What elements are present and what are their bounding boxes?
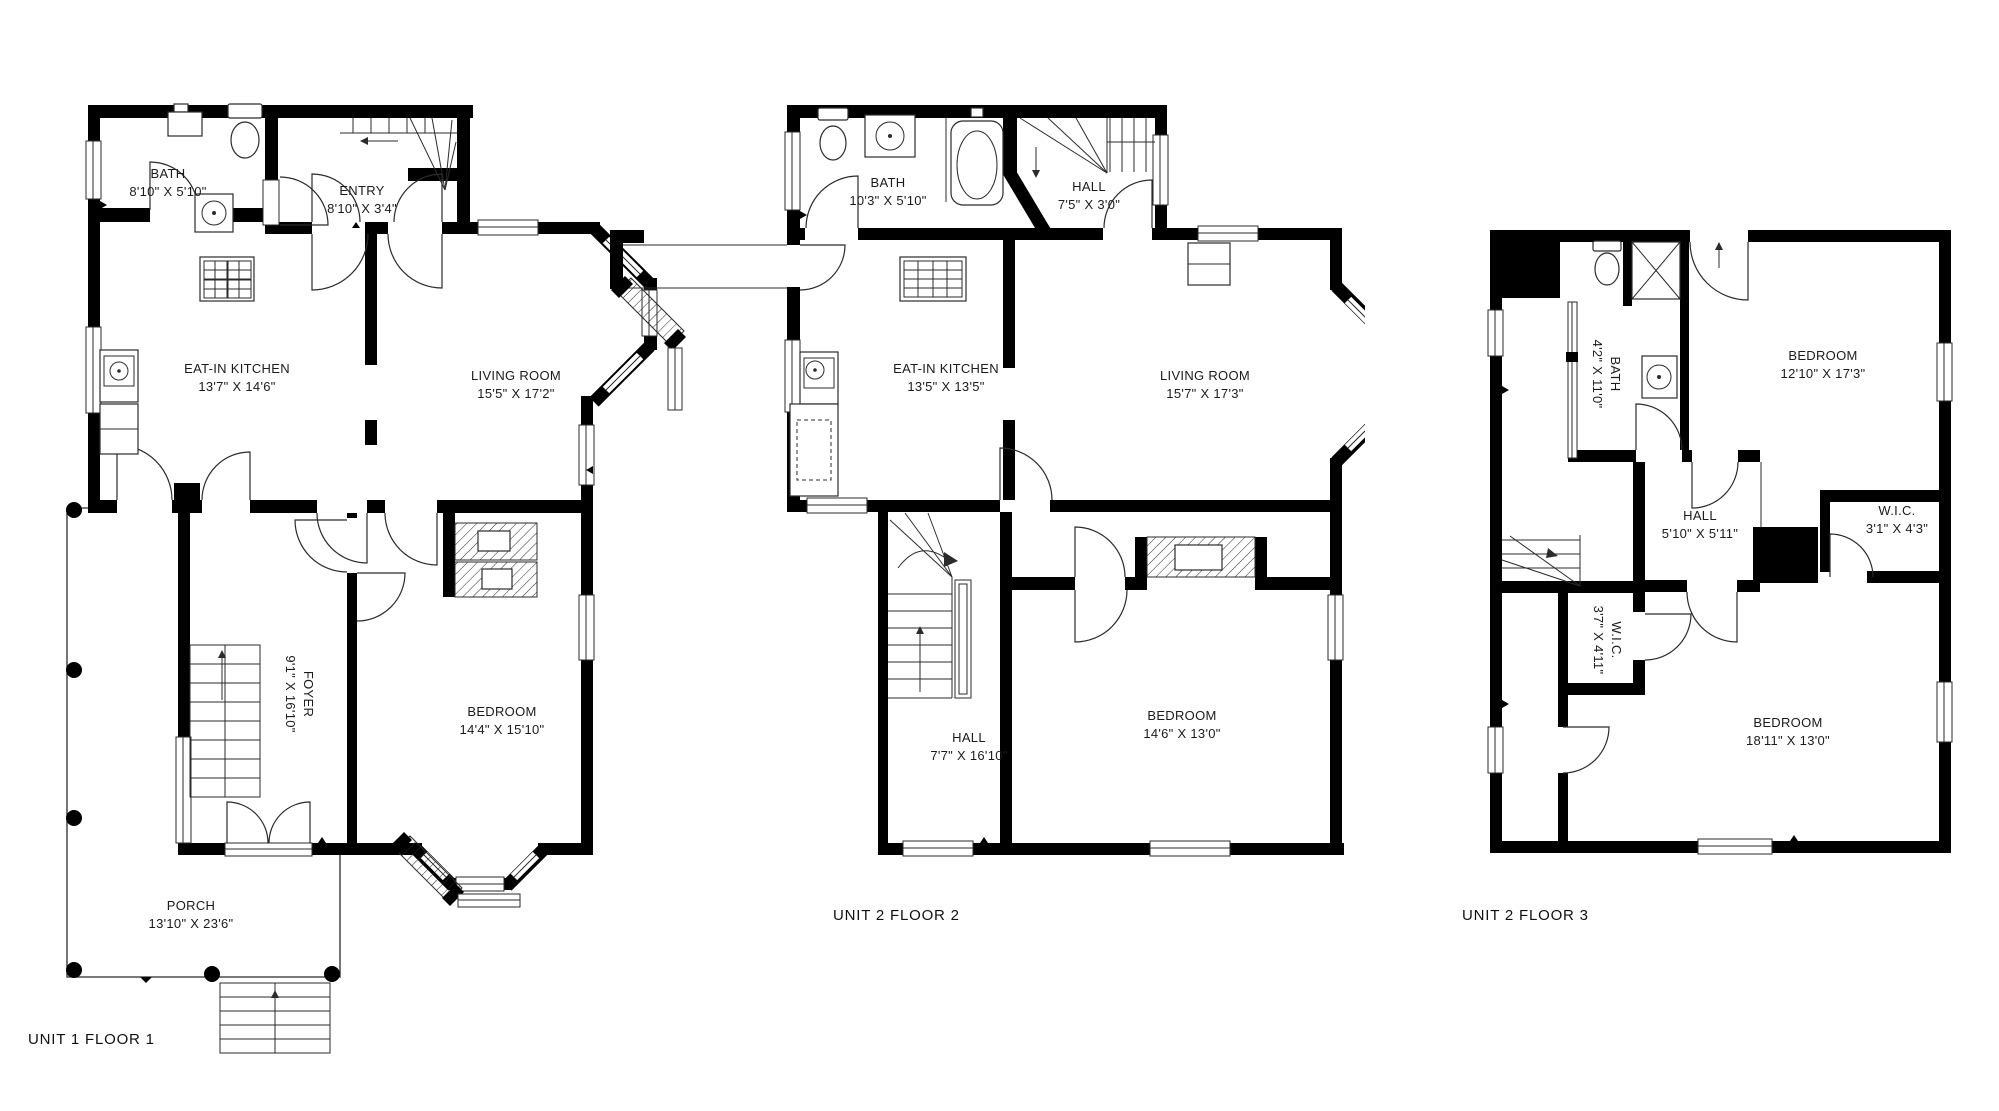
room-label-living-room-2: LIVING ROOM 15'7" X 17'3" xyxy=(1160,367,1250,403)
side-steps xyxy=(390,832,520,907)
lower-stairs xyxy=(888,513,971,698)
room-name: HALL xyxy=(930,729,1007,747)
room-dims: 14'4" X 15'10" xyxy=(460,721,545,739)
room-dims: 14'6" X 13'0" xyxy=(1143,725,1220,743)
floor-title-unit2-floor2: UNIT 2 FLOOR 2 xyxy=(833,907,960,924)
unit2-floor3-drawing xyxy=(1480,220,1980,870)
room-dims: 15'5" X 17'2" xyxy=(471,385,561,403)
upper-stairs xyxy=(1020,118,1155,178)
room-name: W.I.C. xyxy=(1607,606,1625,675)
room-name: BEDROOM xyxy=(1143,707,1220,725)
room-dims: 10'3" X 5'10" xyxy=(849,192,926,210)
entry-stairs xyxy=(340,118,457,190)
room-dims: 8'10" X 5'10" xyxy=(129,183,206,201)
closets-hatched xyxy=(455,523,537,597)
room-label-living-room: LIVING ROOM 15'5" X 17'2" xyxy=(471,367,561,403)
floor-title-unit1-floor1: UNIT 1 FLOOR 1 xyxy=(28,1031,155,1048)
floor-title-unit2-floor3: UNIT 2 FLOOR 3 xyxy=(1462,907,1589,924)
room-name: BEDROOM xyxy=(1781,347,1866,365)
foyer-stairs xyxy=(190,645,260,797)
room-label-hall-upper: HALL 7'5" X 3'0" xyxy=(1058,178,1120,214)
room-name: BEDROOM xyxy=(460,703,545,721)
room-label-bath: BATH 8'10" X 5'10" xyxy=(129,165,206,201)
room-name: W.I.C. xyxy=(1866,502,1928,520)
room-label-kitchen-2: EAT-IN KITCHEN 13'5" X 13'5" xyxy=(893,360,999,396)
room-label-hall-3: HALL 5'10" X 5'11" xyxy=(1662,507,1738,543)
room-dims: 13'7" X 14'6" xyxy=(184,378,290,396)
walls xyxy=(787,105,1344,855)
room-dims: 3'1" X 4'3" xyxy=(1866,520,1928,538)
room-dims: 13'10" X 23'6" xyxy=(149,915,234,933)
room-label-porch: PORCH 13'10" X 23'6" xyxy=(149,897,234,933)
room-name: LIVING ROOM xyxy=(471,367,561,385)
room-label-kitchen: EAT-IN KITCHEN 13'7" X 14'6" xyxy=(184,360,290,396)
room-label-bedroom: BEDROOM 14'4" X 15'10" xyxy=(460,703,545,739)
room-dims: 4'2" X 11'0" xyxy=(1588,340,1606,409)
room-label-bath-3: BATH 4'2" X 11'0" xyxy=(1588,340,1624,409)
room-dims: 15'7" X 17'3" xyxy=(1160,385,1250,403)
room-dims: 3'7" X 4'11" xyxy=(1589,606,1607,675)
room-name: ENTRY xyxy=(327,182,397,200)
windows xyxy=(86,141,594,856)
room-dims: 13'5" X 13'5" xyxy=(893,378,999,396)
kitchen-fixtures xyxy=(100,257,254,454)
closet-hatched xyxy=(1147,537,1255,577)
room-label-foyer: FOYER 9'1" X 16'10" xyxy=(281,655,317,732)
room-name: FOYER xyxy=(299,655,317,732)
bay-window xyxy=(1336,286,1365,462)
floorplan-page: BATH 8'10" X 5'10" ENTRY 8'10" X 3'4" EA… xyxy=(0,0,1999,1111)
room-dims: 12'10" X 17'3" xyxy=(1781,365,1866,383)
room-dims: 8'10" X 3'4" xyxy=(327,200,397,218)
room-name: EAT-IN KITCHEN xyxy=(184,360,290,378)
room-label-entry: ENTRY 8'10" X 3'4" xyxy=(327,182,397,218)
room-name: BATH xyxy=(1606,340,1624,409)
room-dims: 7'5" X 3'0" xyxy=(1058,196,1120,214)
porch-front-steps xyxy=(220,983,330,1053)
room-dims: 5'10" X 5'11" xyxy=(1662,525,1738,543)
room-name: EAT-IN KITCHEN xyxy=(893,360,999,378)
room-name: BATH xyxy=(129,165,206,183)
room-name: LIVING ROOM xyxy=(1160,367,1250,385)
room-dims: 9'1" X 16'10" xyxy=(281,655,299,732)
room-label-bedroom-top: BEDROOM 12'10" X 17'3" xyxy=(1781,347,1866,383)
side-landing xyxy=(610,230,787,410)
room-name: BEDROOM xyxy=(1746,714,1830,732)
doors xyxy=(800,176,1152,642)
room-dims: 7'7" X 16'10" xyxy=(930,747,1007,765)
wall-ticks xyxy=(100,201,593,843)
room-label-bath-2: BATH 10'3" X 5'10" xyxy=(849,174,926,210)
room-label-bedroom-bottom: BEDROOM 18'11" X 13'0" xyxy=(1746,714,1830,750)
windows xyxy=(785,132,1343,856)
room-name: HALL xyxy=(1662,507,1738,525)
room-name: PORCH xyxy=(149,897,234,915)
stairwell xyxy=(1502,302,1580,586)
room-dims: 18'11" X 13'0" xyxy=(1746,732,1830,750)
room-label-hall-lower: HALL 7'7" X 16'10" xyxy=(930,729,1007,765)
room-name: HALL xyxy=(1058,178,1120,196)
room-label-wic-right: W.I.C. 3'1" X 4'3" xyxy=(1866,502,1928,538)
room-label-wic-left: W.I.C. 3'7" X 4'11" xyxy=(1589,606,1625,675)
room-name: BATH xyxy=(849,174,926,192)
room-label-bedroom-2: BEDROOM 14'6" X 13'0" xyxy=(1143,707,1220,743)
